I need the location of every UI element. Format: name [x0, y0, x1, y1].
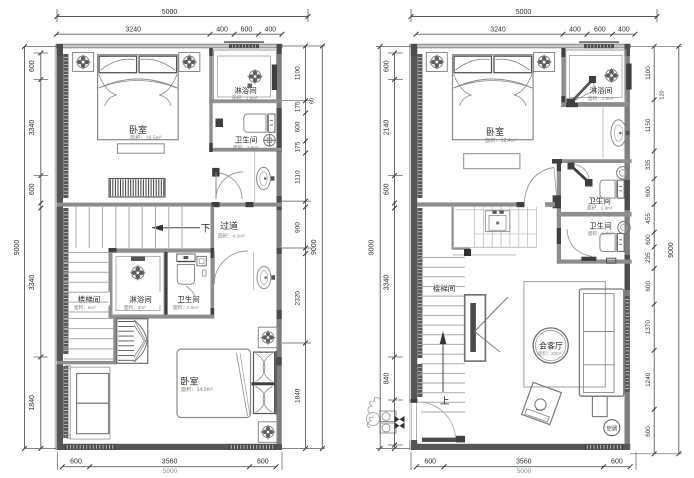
svg-text:600: 600 — [645, 234, 652, 245]
svg-text:上: 上 — [440, 396, 450, 407]
svg-text:9000: 9000 — [668, 242, 675, 258]
svg-text:3240: 3240 — [490, 27, 506, 34]
svg-text:楼梯间: 楼梯间 — [433, 283, 456, 293]
svg-text:1240: 1240 — [645, 372, 652, 387]
svg-text:600: 600 — [594, 27, 606, 34]
svg-text:5000: 5000 — [517, 468, 532, 473]
svg-text:600: 600 — [295, 121, 302, 132]
svg-text:1150: 1150 — [645, 118, 652, 132]
svg-text:3340: 3340 — [29, 275, 36, 291]
svg-text:面积：16.5m²: 面积：16.5m² — [130, 135, 162, 142]
svg-text:3560: 3560 — [162, 459, 178, 466]
svg-text:面积：4.2m²: 面积：4.2m² — [218, 233, 245, 240]
svg-text:600: 600 — [384, 183, 391, 195]
svg-text:淋浴间: 淋浴间 — [129, 294, 152, 304]
svg-text:400: 400 — [618, 27, 630, 34]
svg-text:60: 60 — [310, 98, 316, 104]
svg-text:3240: 3240 — [125, 27, 141, 34]
svg-text:600: 600 — [645, 186, 652, 197]
svg-text:175: 175 — [295, 141, 302, 152]
svg-text:面积：2.5m²: 面积：2.5m² — [233, 144, 259, 151]
svg-text:600: 600 — [29, 60, 36, 72]
svg-text:面积：23m²: 面积：23m² — [538, 350, 562, 357]
svg-text:卧室: 卧室 — [180, 376, 198, 387]
svg-text:175: 175 — [295, 101, 302, 112]
svg-text:3560: 3560 — [516, 459, 532, 466]
svg-text:2140: 2140 — [384, 120, 391, 136]
svg-text:455: 455 — [645, 213, 652, 224]
svg-text:3340: 3340 — [384, 275, 391, 291]
svg-text:335: 335 — [645, 159, 652, 170]
svg-text:840: 840 — [384, 373, 391, 385]
svg-text:1100: 1100 — [295, 66, 302, 80]
svg-text:600: 600 — [645, 281, 652, 292]
svg-text:600: 600 — [241, 27, 253, 34]
svg-text:400: 400 — [264, 27, 276, 34]
svg-text:1840: 1840 — [29, 395, 36, 411]
svg-text:1370: 1370 — [645, 320, 652, 335]
svg-text:卫生间: 卫生间 — [589, 221, 612, 231]
svg-text:面积：12.4m²: 面积：12.4m² — [485, 137, 517, 144]
svg-text:600: 600 — [70, 459, 82, 466]
svg-text:卫生间: 卫生间 — [235, 135, 258, 145]
svg-text:过道: 过道 — [220, 220, 238, 231]
svg-text:面积：5m²: 面积：5m² — [74, 304, 96, 311]
svg-text:900: 900 — [295, 222, 302, 233]
svg-text:235: 235 — [645, 252, 652, 263]
svg-text:面积：1.9m²: 面积：1.9m² — [588, 95, 614, 102]
svg-text:淋浴间: 淋浴间 — [234, 85, 257, 95]
svg-text:5000: 5000 — [516, 9, 532, 16]
svg-text:600: 600 — [29, 183, 36, 195]
svg-text:600: 600 — [645, 426, 652, 437]
svg-text:下: 下 — [201, 224, 211, 235]
svg-text:600: 600 — [424, 459, 436, 466]
svg-text:120: 120 — [660, 90, 666, 99]
svg-text:9000: 9000 — [311, 239, 318, 255]
svg-text:5000: 5000 — [163, 468, 178, 473]
svg-text:面积：1.9m²: 面积：1.9m² — [587, 205, 613, 212]
svg-text:2320: 2320 — [295, 291, 302, 306]
svg-text:400: 400 — [216, 27, 228, 34]
svg-text:卫生间: 卫生间 — [588, 196, 611, 206]
svg-text:会客厅: 会客厅 — [539, 341, 563, 351]
svg-text:卧室: 卧室 — [486, 126, 504, 137]
svg-text:9000: 9000 — [369, 240, 376, 256]
svg-text:600: 600 — [611, 459, 623, 466]
svg-text:面积：1.9m²: 面积：1.9m² — [232, 95, 258, 102]
svg-text:1110: 1110 — [295, 170, 302, 184]
svg-text:9000: 9000 — [14, 240, 21, 256]
svg-text:淋浴间: 淋浴间 — [590, 85, 613, 95]
svg-text:600: 600 — [257, 459, 269, 466]
svg-text:5000: 5000 — [162, 9, 178, 16]
svg-text:600: 600 — [384, 60, 391, 72]
svg-text:1840: 1840 — [295, 388, 302, 403]
svg-text:3340: 3340 — [29, 120, 36, 136]
svg-text:1100: 1100 — [645, 66, 652, 80]
svg-text:400: 400 — [569, 27, 581, 34]
svg-text:面积：14.3m²: 面积：14.3m² — [181, 386, 213, 393]
svg-text:面积：2.5m²: 面积：2.5m² — [173, 304, 199, 311]
svg-text:卧室: 卧室 — [129, 124, 147, 135]
svg-text:空调: 空调 — [606, 424, 617, 432]
svg-text:面积：3m²: 面积：3m² — [124, 304, 146, 311]
svg-text:卫生间: 卫生间 — [177, 294, 200, 304]
